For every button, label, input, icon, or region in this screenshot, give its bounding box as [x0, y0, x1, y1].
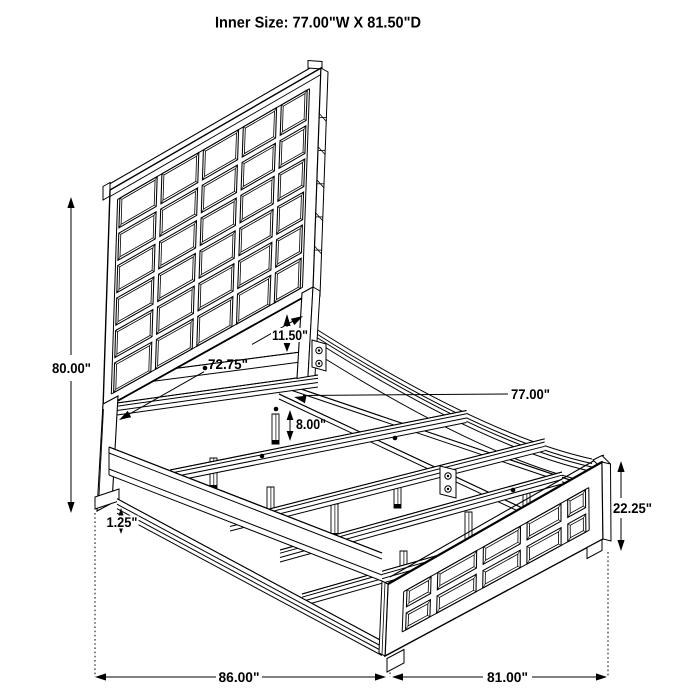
svg-text:80.00": 80.00" [52, 360, 91, 376]
svg-text:81.00": 81.00" [487, 669, 528, 685]
svg-text:72.75": 72.75" [208, 356, 248, 372]
svg-text:1.25": 1.25" [107, 514, 138, 530]
svg-text:86.00": 86.00" [219, 669, 260, 685]
svg-text:22.25": 22.25" [613, 500, 652, 516]
svg-text:8.00": 8.00" [296, 416, 326, 432]
svg-text:77.00": 77.00" [511, 386, 550, 402]
svg-text:Inner Size: 77.00"W X 81.50"D: Inner Size: 77.00"W X 81.50"D [215, 15, 421, 32]
svg-text:11.50": 11.50" [272, 327, 308, 343]
